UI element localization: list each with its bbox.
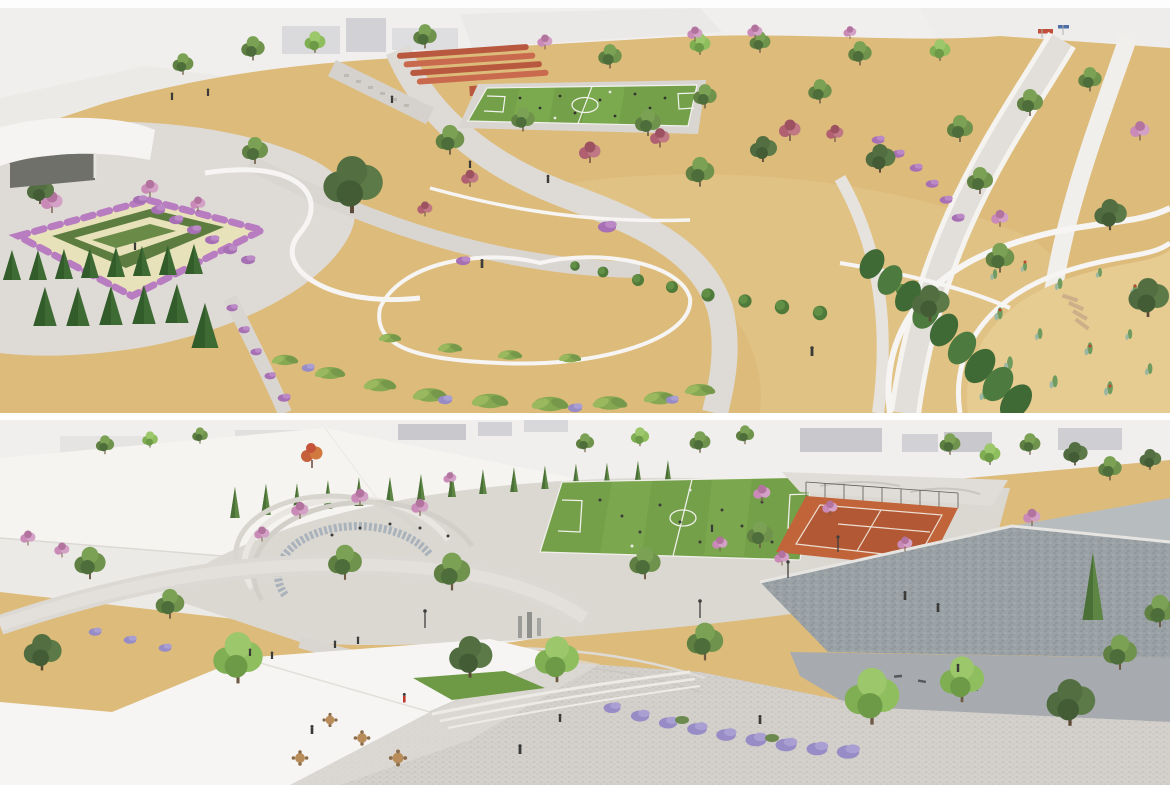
soccer-field xyxy=(540,477,812,560)
soccer-field xyxy=(458,80,706,134)
panel-divider xyxy=(0,413,1170,420)
person-red-shirt xyxy=(403,693,406,703)
top-render-image xyxy=(0,8,1170,413)
bottom-render-image xyxy=(0,420,1170,785)
screenshot-canvas xyxy=(0,0,1170,785)
